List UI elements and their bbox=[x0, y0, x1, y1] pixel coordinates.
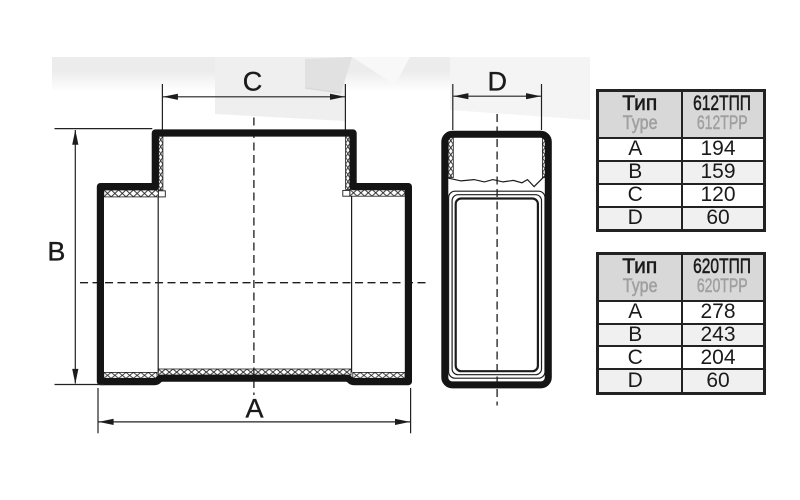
svg-text:A: A bbox=[245, 394, 263, 424]
svg-text:D: D bbox=[488, 67, 508, 97]
svg-text:B: B bbox=[47, 237, 65, 267]
svg-text:C: C bbox=[243, 66, 263, 96]
